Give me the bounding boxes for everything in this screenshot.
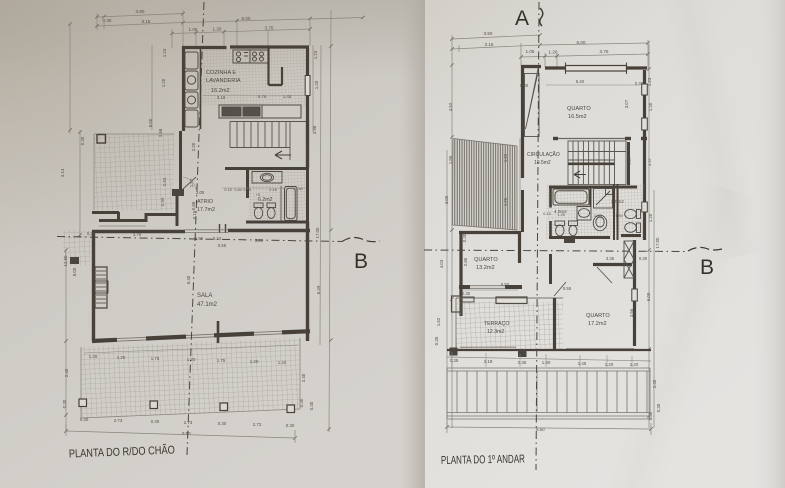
svg-text:2.20: 2.20 (191, 142, 196, 151)
svg-text:1.20: 1.20 (648, 213, 653, 222)
svg-text:1.20: 1.20 (161, 78, 166, 87)
svg-text:3.50: 3.50 (484, 31, 493, 36)
svg-text:CIRCULAÇÃO: CIRCULAÇÃO (527, 151, 560, 158)
svg-text:1.20: 1.20 (549, 50, 558, 55)
svg-text:1.75: 1.75 (151, 356, 160, 361)
svg-text:0.30: 0.30 (656, 403, 661, 412)
svg-text:ATRIO: ATRIO (197, 199, 213, 205)
svg-text:16.5m2: 16.5m2 (568, 114, 587, 120)
svg-text:5.50: 5.50 (501, 282, 510, 287)
svg-text:3.15: 3.15 (142, 19, 151, 24)
svg-text:2.73: 2.73 (253, 422, 262, 427)
svg-text:3.00: 3.00 (444, 195, 449, 204)
svg-text:6.2m2: 6.2m2 (258, 197, 273, 203)
svg-text:2.40: 2.40 (652, 379, 657, 388)
svg-text:1.20: 1.20 (314, 80, 319, 89)
svg-text:8.00: 8.00 (72, 267, 77, 276)
svg-text:1.20: 1.20 (503, 153, 508, 162)
svg-text:QUARTO: QUARTO (586, 313, 610, 319)
svg-text:1.45: 1.45 (283, 94, 292, 99)
svg-text:4.03: 4.03 (439, 259, 444, 268)
svg-text:3.07: 3.07 (624, 99, 629, 108)
svg-text:2.86: 2.86 (463, 257, 468, 266)
svg-text:0.30: 0.30 (520, 83, 529, 88)
svg-text:0.30: 0.30 (286, 423, 295, 428)
svg-text:0.30: 0.30 (295, 186, 303, 191)
svg-text:1.05: 1.05 (189, 27, 198, 32)
svg-text:17.7m2: 17.7m2 (197, 207, 215, 213)
svg-text:0.35: 0.35 (518, 360, 527, 365)
svg-text:3.80: 3.80 (136, 9, 145, 14)
svg-text:2.0m2: 2.0m2 (611, 199, 624, 204)
svg-text:1.75: 1.75 (217, 358, 226, 363)
svg-text:TERRAÇO: TERRAÇO (484, 321, 509, 327)
svg-text:1.50: 1.50 (615, 213, 623, 218)
svg-text:1.20: 1.20 (250, 359, 259, 364)
svg-text:0.88: 0.88 (191, 201, 196, 210)
svg-text:1.45: 1.45 (578, 361, 587, 366)
svg-text:0.30: 0.30 (80, 417, 89, 422)
svg-text:1.86: 1.86 (448, 155, 453, 164)
svg-text:3.98: 3.98 (312, 125, 317, 134)
svg-text:B: B (700, 256, 714, 279)
svg-text:0.30: 0.30 (218, 421, 227, 426)
svg-text:1.26: 1.26 (503, 197, 508, 206)
svg-text:2.73: 2.73 (114, 418, 123, 423)
svg-text:3.75: 3.75 (600, 49, 609, 54)
svg-text:1.80: 1.80 (542, 360, 551, 365)
svg-text:8.00: 8.00 (148, 118, 153, 127)
svg-text:0.55: 0.55 (563, 286, 572, 291)
svg-text:3.35: 3.35 (606, 256, 615, 261)
svg-text:1.20: 1.20 (278, 360, 287, 365)
svg-text:3.75: 3.75 (265, 26, 274, 31)
svg-text:3.78: 3.78 (133, 232, 142, 237)
svg-text:1.20: 1.20 (89, 354, 98, 359)
svg-text:3.14: 3.14 (60, 168, 65, 177)
svg-text:0.35: 0.35 (450, 358, 459, 363)
svg-text:6.00: 6.00 (242, 16, 251, 21)
svg-text:+5: +5 (256, 192, 260, 197)
svg-text:1.25: 1.25 (557, 212, 565, 217)
svg-text:1.20: 1.20 (648, 102, 653, 111)
svg-text:6.00: 6.00 (646, 292, 651, 301)
svg-text:0.30: 0.30 (309, 401, 314, 410)
svg-text:3.18: 3.18 (484, 359, 493, 364)
svg-text:3.15: 3.15 (485, 42, 494, 47)
svg-text:1.23: 1.23 (162, 48, 167, 57)
svg-text:17.00: 17.00 (655, 237, 660, 249)
svg-text:0.30: 0.30 (462, 233, 467, 242)
svg-text:A: A (515, 7, 529, 30)
svg-text:QUARTO: QUARTO (567, 106, 591, 112)
svg-text:0.30: 0.30 (639, 256, 648, 261)
svg-text:16.2m2: 16.2m2 (211, 88, 230, 94)
svg-text:0.15: 0.15 (543, 211, 551, 216)
svg-text:0.55: 0.55 (218, 243, 227, 248)
svg-text:1.23: 1.23 (313, 50, 318, 59)
svg-text:17.00: 17.00 (315, 227, 320, 239)
svg-text:6.00: 6.00 (577, 40, 586, 45)
svg-text:2.40: 2.40 (64, 368, 69, 377)
svg-text:5.40: 5.40 (576, 79, 585, 84)
svg-text:B: B (354, 250, 368, 273)
svg-text:1.20: 1.20 (117, 355, 126, 360)
svg-text:12.3m2: 12.3m2 (487, 329, 504, 335)
svg-text:13.2m2: 13.2m2 (476, 265, 495, 271)
svg-text:0.30: 0.30 (87, 231, 96, 236)
svg-text:9.50: 9.50 (182, 431, 191, 436)
svg-text:5.40: 5.40 (186, 275, 191, 284)
svg-text:4.52: 4.52 (448, 102, 453, 111)
svg-text:0.24: 0.24 (213, 236, 222, 241)
svg-text:0.35: 0.35 (434, 336, 439, 345)
svg-text:0.75: 0.75 (258, 94, 267, 99)
svg-text:1.62: 1.62 (436, 317, 441, 326)
svg-text:1.20: 1.20 (213, 27, 222, 32)
svg-text:0.30: 0.30 (151, 419, 160, 424)
svg-text:0.55: 0.55 (594, 213, 602, 218)
svg-text:PLANTA DO 1º ANDAR: PLANTA DO 1º ANDAR (441, 454, 525, 467)
svg-text:10.5m2: 10.5m2 (534, 160, 551, 166)
svg-text:LAVANDERIA: LAVANDERIA (206, 78, 241, 84)
svg-text:0.30: 0.30 (62, 399, 67, 408)
svg-text:0.30: 0.30 (462, 291, 471, 296)
svg-text:QUARTO: QUARTO (474, 257, 498, 263)
svg-text:SALA: SALA (197, 293, 212, 299)
svg-text:4.37: 4.37 (647, 157, 652, 166)
svg-text:1.20: 1.20 (605, 362, 614, 367)
svg-text:47.1m2: 47.1m2 (197, 302, 218, 308)
svg-text:0.30: 0.30 (80, 136, 85, 145)
svg-text:1.20: 1.20 (630, 362, 639, 367)
svg-text:1.05: 1.05 (526, 49, 535, 54)
svg-text:2.19: 2.19 (627, 156, 632, 165)
svg-text:0.30: 0.30 (103, 18, 112, 23)
svg-text:6.39: 6.39 (316, 285, 321, 294)
svg-text:1.20: 1.20 (187, 357, 196, 362)
svg-text:COZINHA E: COZINHA E (206, 70, 236, 76)
svg-text:2.40: 2.40 (301, 373, 306, 382)
svg-text:17.2m2: 17.2m2 (588, 321, 607, 327)
